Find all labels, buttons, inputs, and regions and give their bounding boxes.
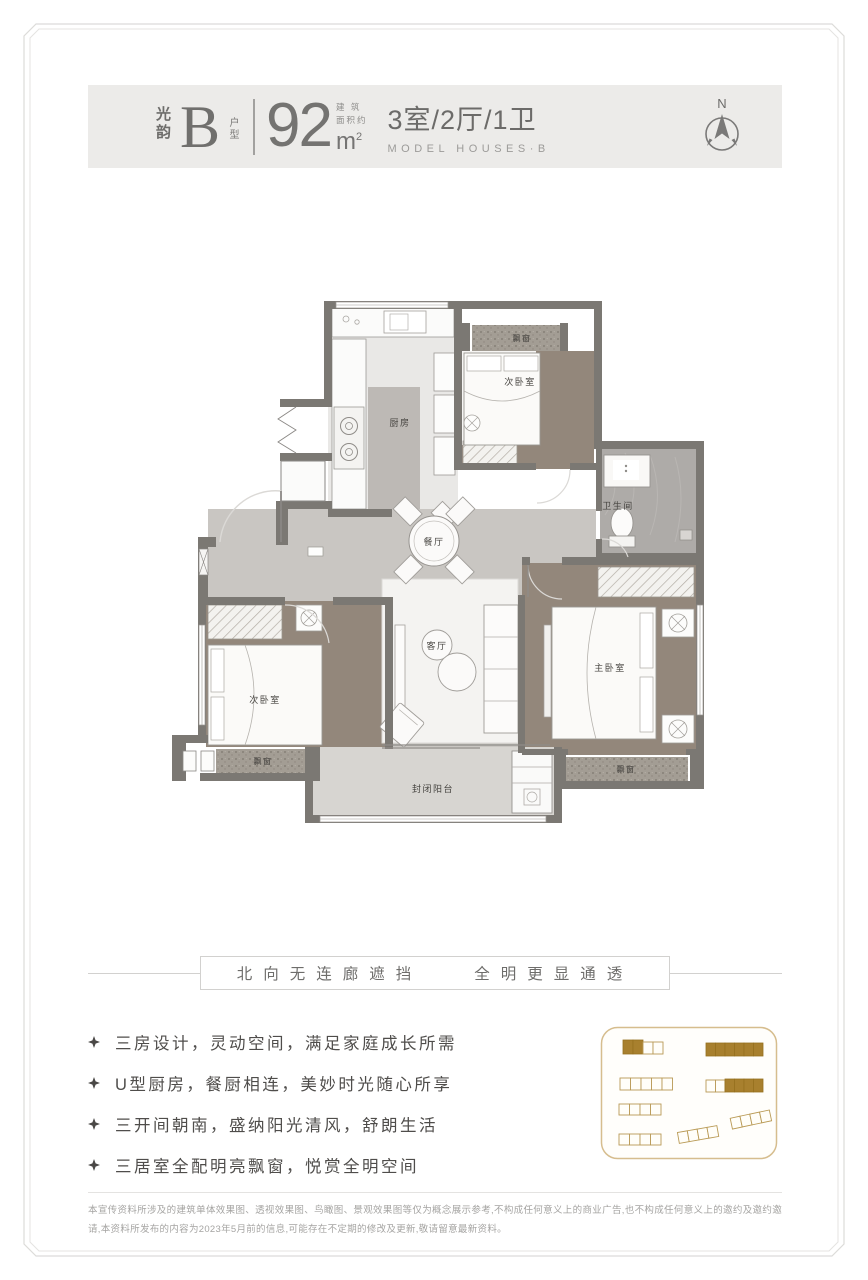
star-icon [88,1077,100,1089]
room-spec-en: MODEL HOUSES·B [388,143,550,155]
area-note-bottom: 面积约 [336,114,368,127]
room-balcony [313,747,554,817]
tagline-rule-left [88,973,200,974]
header-divider [253,99,255,155]
label-bay-master: 飘窗 [617,764,636,774]
feature-item: 三居室全配明亮飘窗，悦赏全明空间 [88,1153,457,1177]
unit-type-letter: B [180,100,220,154]
label-bay-left: 飘窗 [254,756,273,766]
siteplan-building-highlight [706,1079,763,1092]
feature-text: 三房设计，灵动空间，满足家庭成长所需 [115,1030,457,1054]
siteplan-building [619,1134,661,1145]
siteplan-building [619,1104,661,1115]
header-band: 光韵 B 户型 92 建 筑 面积约 m2 3室/2厅/1卫 MODEL HOU… [88,85,782,168]
label-master: 主卧室 [594,662,626,673]
tagline: 北向无连廊遮挡 全明更显通透 [88,956,782,990]
label-kitchen: 厨房 [389,417,410,428]
area-unit: m2 [336,130,368,154]
label-dining: 餐厅 [423,536,444,547]
siteplan-building [620,1078,673,1090]
label-bathroom: 卫生间 [602,500,634,511]
svg-text:N: N [717,96,726,111]
area-note-top: 建 筑 [336,101,368,114]
star-icon [88,1036,100,1048]
disclaimer-text: 本宣传资料所涉及的建筑单体效果图、透视效果图、鸟瞰图、景观效果图等仅为概念展示参… [88,1201,782,1240]
feature-item: U型厨房，餐厨相连，美妙时光随心所享 [88,1071,457,1095]
feature-text: 三居室全配明亮飘窗，悦赏全明空间 [115,1153,419,1177]
label-bedroom-left: 次卧室 [249,694,281,705]
tagline-left: 北向无连廊遮挡 [237,962,423,984]
star-icon [88,1159,100,1171]
floorplan-poster-page: 光韵 B 户型 92 建 筑 面积约 m2 3室/2厅/1卫 MODEL HOU… [0,0,868,1280]
compass-icon: N [696,94,748,160]
room-spec: 3室/2厅/1卫 [388,98,550,137]
feature-list: 三房设计，灵动空间，满足家庭成长所需 U型厨房，餐厨相连，美妙时光随心所享 三开… [88,1030,457,1194]
feature-text: 三开间朝南，盛纳阳光清风，舒朗生活 [115,1112,438,1136]
siteplan-map [600,1026,778,1162]
unit-type-label: 户型 [225,117,240,151]
tagline-box: 北向无连廊遮挡 全明更显通透 [200,956,671,990]
star-icon [88,1118,100,1130]
label-balcony: 封闭阳台 [412,783,454,794]
title-group: 光韵 B 户型 92 建 筑 面积约 m2 3室/2厅/1卫 MODEL HOU… [152,98,550,155]
tagline-right: 全明更显通透 [474,962,633,984]
area-unit-group: 建 筑 面积约 m2 [336,101,368,154]
siteplan-building-highlight [623,1040,663,1054]
tagline-rule-right [670,973,782,974]
spec-block: 3室/2厅/1卫 MODEL HOUSES·B [388,98,550,155]
feature-item: 三开间朝南，盛纳阳光清风，舒朗生活 [88,1112,457,1136]
brand-name: 光韵 [152,106,173,148]
feature-item: 三房设计，灵动空间，满足家庭成长所需 [88,1030,457,1054]
siteplan-building-highlight [706,1043,763,1056]
area-value: 92 [266,100,331,153]
label-bay-top: 飘窗 [513,333,532,343]
floorplan-drawing: 厨房 次卧室 飘窗 卫生间 餐厅 客厅 主卧室 次卧室 飘窗 飘窗 封闭阳台 [150,295,720,845]
feature-text: U型厨房，餐厨相连，美妙时光随心所享 [115,1071,452,1095]
disclaimer: 本宣传资料所涉及的建筑单体效果图、透视效果图、鸟瞰图、景观效果图等仅为概念展示参… [88,1192,782,1240]
room-living [379,579,518,748]
label-living: 客厅 [426,640,447,651]
label-bedroom-top: 次卧室 [504,376,536,387]
room-bedroom-top [462,325,594,469]
